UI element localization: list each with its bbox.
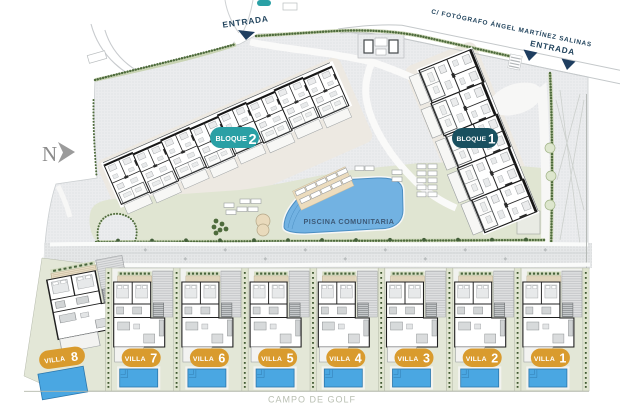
svg-text:VILLA: VILLA: [193, 356, 214, 363]
svg-text:VILLA: VILLA: [534, 356, 555, 363]
svg-text:6: 6: [218, 352, 225, 366]
svg-text:N: N: [42, 142, 57, 166]
svg-text:VILLA: VILLA: [261, 356, 282, 363]
svg-text:CAMPO DE GOLF: CAMPO DE GOLF: [268, 395, 356, 405]
svg-text:BLOQUE: BLOQUE: [457, 136, 487, 143]
svg-text:1: 1: [488, 132, 496, 147]
svg-text:1: 1: [559, 352, 566, 366]
svg-text:VILLA: VILLA: [329, 356, 350, 363]
svg-text:5: 5: [287, 352, 294, 366]
svg-text:BLOQUE: BLOQUE: [216, 134, 247, 143]
svg-text:2: 2: [249, 132, 257, 148]
svg-text:VILLA: VILLA: [125, 356, 146, 363]
svg-text:4: 4: [355, 352, 362, 366]
svg-text:PISCINA COMUNITARIA: PISCINA COMUNITARIA: [304, 217, 395, 226]
svg-text:7: 7: [150, 352, 157, 366]
svg-text:VILLA: VILLA: [466, 356, 487, 363]
svg-text:2: 2: [491, 352, 498, 366]
svg-text:VILLA: VILLA: [398, 356, 419, 363]
svg-text:3: 3: [423, 352, 430, 366]
